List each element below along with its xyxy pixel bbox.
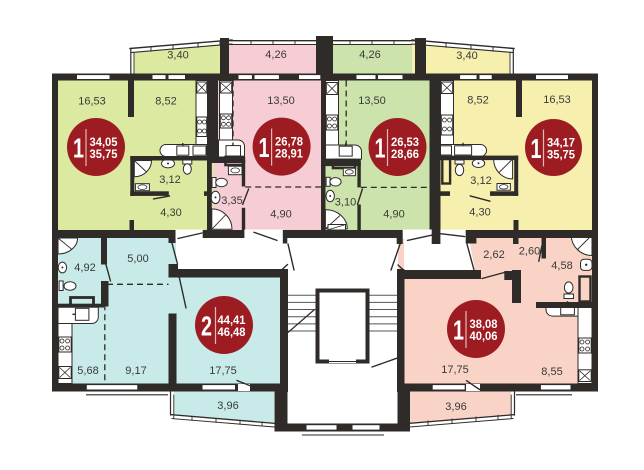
svg-text:3,96: 3,96 (445, 401, 466, 413)
svg-text:8,52: 8,52 (155, 96, 176, 108)
svg-text:5,68: 5,68 (77, 365, 98, 377)
svg-text:16,53: 16,53 (543, 94, 571, 106)
svg-text:16,53: 16,53 (78, 96, 106, 108)
svg-text:1: 1 (73, 133, 84, 164)
svg-text:5,00: 5,00 (127, 253, 148, 265)
svg-text:4,26: 4,26 (359, 49, 380, 61)
svg-text:2,62: 2,62 (483, 249, 504, 261)
svg-text:1: 1 (531, 133, 542, 164)
svg-text:13,50: 13,50 (358, 95, 386, 107)
svg-text:3,12: 3,12 (470, 175, 491, 187)
svg-text:1: 1 (375, 133, 386, 164)
svg-text:28,91: 28,91 (275, 147, 303, 161)
svg-text:4,30: 4,30 (469, 207, 490, 219)
svg-text:1: 1 (453, 315, 464, 346)
svg-text:8,55: 8,55 (541, 366, 562, 378)
svg-text:4,92: 4,92 (74, 262, 95, 274)
svg-text:4,26: 4,26 (265, 49, 286, 61)
svg-text:1: 1 (259, 132, 270, 163)
svg-text:46,48: 46,48 (218, 325, 246, 339)
svg-text:13,50: 13,50 (267, 95, 295, 107)
svg-text:8,52: 8,52 (467, 95, 488, 107)
svg-text:35,75: 35,75 (547, 148, 575, 162)
svg-text:9,17: 9,17 (125, 365, 146, 377)
svg-text:3,40: 3,40 (456, 50, 477, 62)
svg-text:2,60: 2,60 (519, 246, 540, 258)
svg-text:28,66: 28,66 (391, 147, 419, 161)
svg-text:35,75: 35,75 (90, 147, 118, 161)
svg-text:3,35: 3,35 (221, 195, 242, 207)
svg-text:3,96: 3,96 (217, 400, 238, 412)
svg-text:3,10: 3,10 (335, 197, 356, 209)
svg-text:4,58: 4,58 (551, 260, 572, 272)
svg-text:2: 2 (201, 311, 212, 342)
svg-text:4,90: 4,90 (383, 209, 404, 221)
svg-text:17,75: 17,75 (441, 364, 469, 376)
svg-text:40,06: 40,06 (470, 329, 498, 343)
svg-text:4,30: 4,30 (160, 207, 181, 219)
svg-text:17,75: 17,75 (209, 365, 237, 377)
svg-text:3,40: 3,40 (167, 50, 188, 62)
svg-text:4,90: 4,90 (270, 209, 291, 221)
svg-text:3,12: 3,12 (159, 174, 180, 186)
